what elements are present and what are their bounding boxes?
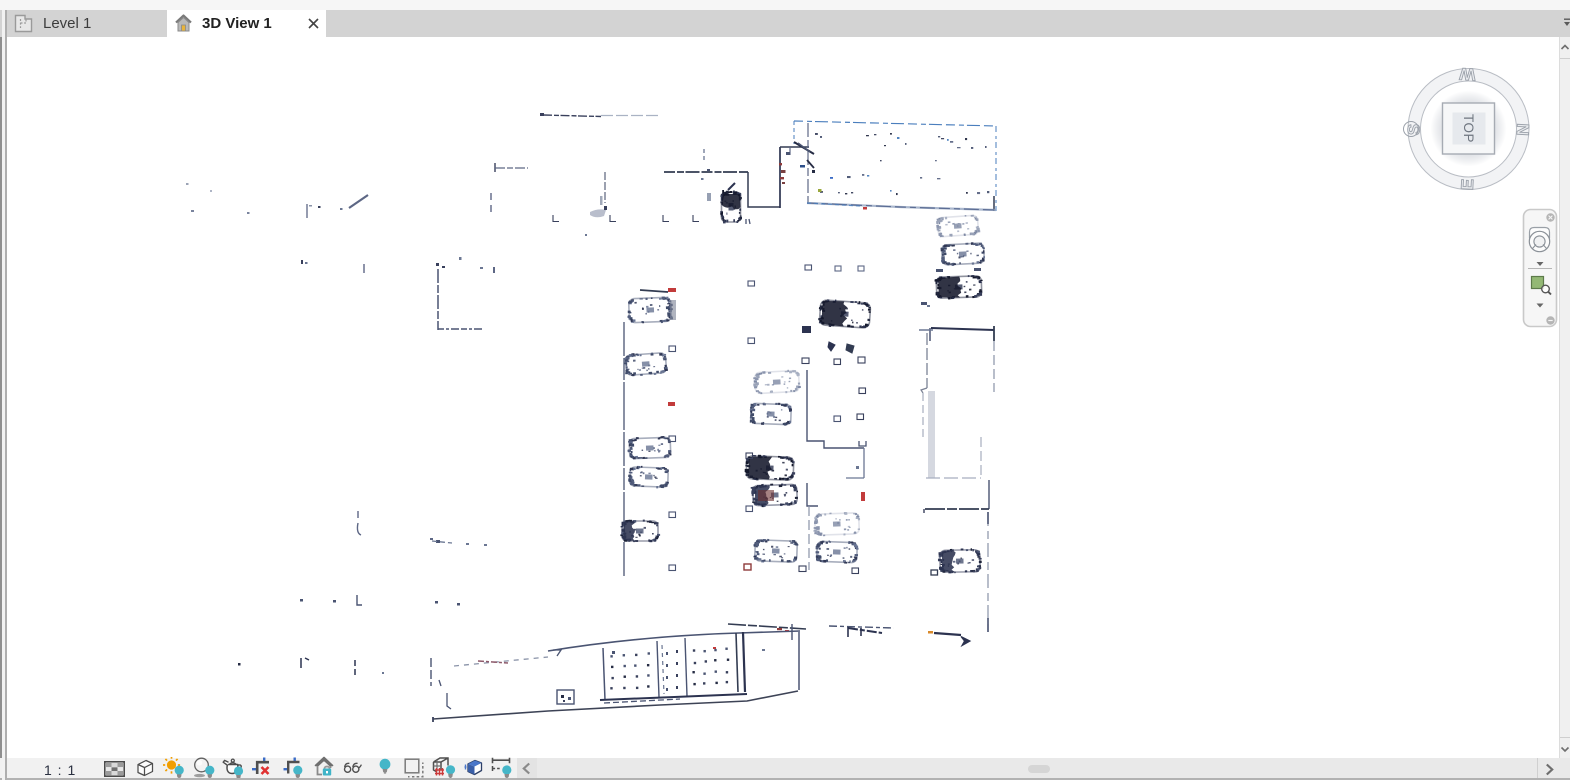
svg-text:TOP: TOP (1461, 114, 1476, 143)
svg-text:E: E (1458, 178, 1478, 190)
svg-text:W: W (1458, 64, 1476, 84)
svg-text:S: S (1404, 123, 1424, 135)
svg-text:N: N (1513, 123, 1533, 136)
